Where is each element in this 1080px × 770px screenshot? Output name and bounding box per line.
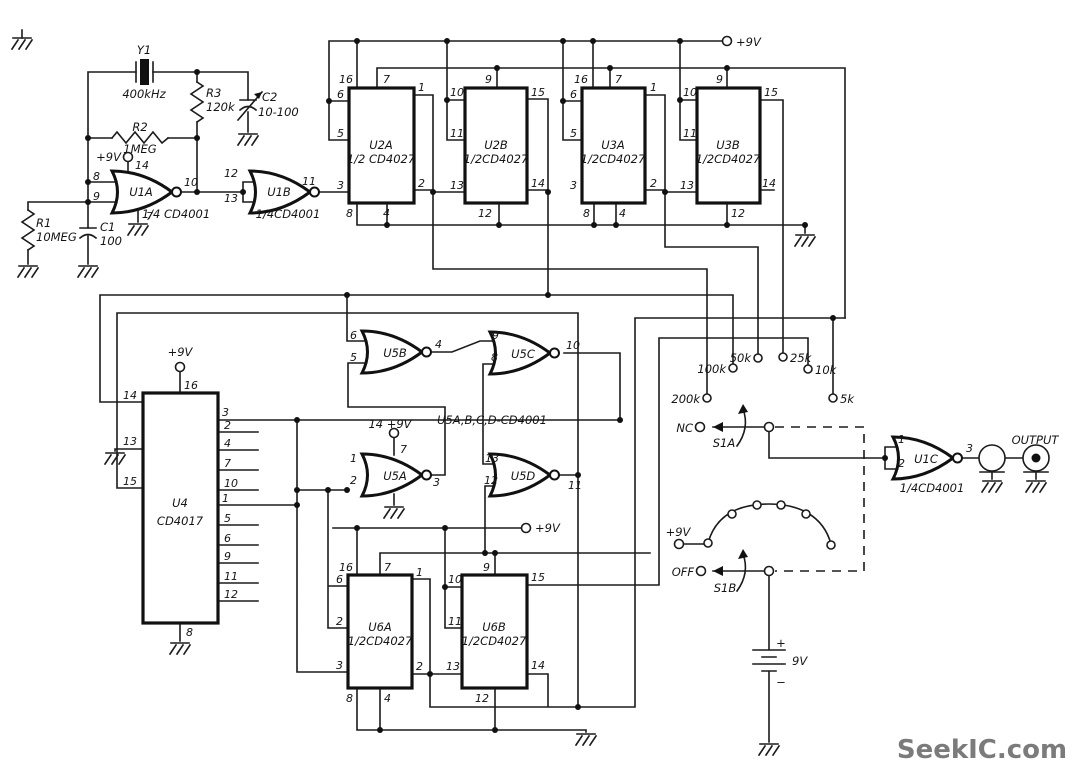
pin-label: 4	[384, 692, 391, 705]
pin-label: 5	[350, 351, 357, 364]
pin-label: 16	[184, 379, 198, 392]
pin-label: 9	[485, 73, 492, 86]
pin-label: 14	[123, 389, 137, 402]
pin-label: 12	[224, 167, 238, 180]
u2b-name: U2B	[484, 138, 508, 152]
pin-label: 12	[484, 474, 498, 487]
s1b-supply-label: +9V	[666, 525, 692, 539]
pin-label: 1	[418, 81, 425, 94]
u1b-part: 1/4CD4001	[256, 207, 321, 221]
s1a-name: S1A	[713, 436, 736, 450]
u5c-name: U5C	[511, 347, 535, 361]
u2b-part: 1/2CD4027	[464, 152, 529, 166]
s1b-contact	[704, 539, 712, 547]
ground-symbols	[12, 38, 1046, 755]
pin-label: 10	[683, 86, 697, 99]
tap-label: 50k	[730, 351, 753, 365]
battery-plus-label: +	[776, 636, 786, 650]
s1b-contact	[753, 501, 761, 509]
s1a-contact-10k	[804, 365, 812, 373]
s1a-contact-50k	[754, 354, 762, 362]
pin-label: 1	[898, 433, 905, 446]
pin-label: 12	[478, 207, 492, 220]
pin-label: 12	[731, 207, 745, 220]
u6-rail-label: +9V	[535, 521, 561, 535]
pin-label: 14	[531, 659, 545, 672]
u6b-part: 1/2CD4027	[462, 634, 527, 648]
output-stage: 1 2 U1C 3 1/4CD4001 OUTPUT	[893, 433, 1059, 495]
cap-c2-value: 10-100	[258, 105, 299, 119]
s1b-contact	[728, 510, 736, 518]
pin-label: 10	[184, 176, 198, 189]
pin-label: 2	[350, 474, 357, 487]
pin-label: 7	[400, 443, 407, 456]
u5a-name: U5A	[383, 469, 407, 483]
resistor-r1-label: R1	[36, 216, 51, 230]
u3b-name: U3B	[716, 138, 740, 152]
u4-vdd-terminal	[176, 363, 185, 372]
u5a-vdd-label: 14 +9V	[368, 417, 412, 431]
pin-label: 2	[336, 615, 343, 628]
pin-label: 9	[93, 190, 100, 203]
s1a-contact-100k	[729, 364, 737, 372]
wires	[22, 30, 1048, 742]
tap-label: 200k	[671, 392, 701, 406]
rail-voltage-label: +9V	[736, 35, 762, 49]
selector-s1a: 200k 100k 50k 25k 10k 5k NC S1A	[671, 351, 855, 450]
pin-label: 8	[346, 207, 353, 220]
s1a-contact-nc	[696, 423, 705, 432]
pin-label: 2	[416, 660, 423, 673]
pin-label: 11	[448, 615, 462, 628]
u1c-name: U1C	[914, 452, 938, 466]
pin-label: 4	[435, 338, 442, 351]
s1b-pole	[765, 567, 774, 576]
pin-label: 16	[574, 73, 588, 86]
pin-label: 9	[492, 329, 499, 342]
u1a-vdd-terminal	[124, 153, 133, 162]
pin-label: 13	[446, 660, 460, 673]
u1c-part: 1/4CD4001	[900, 481, 965, 495]
pin-label: 3	[222, 406, 229, 419]
pin-label: 16	[339, 73, 353, 86]
battery-voltage-label: 9V	[792, 654, 808, 668]
resistor-r3-value: 120k	[206, 100, 236, 114]
pin-label: 7	[384, 561, 391, 574]
u4-vdd-label: +9V	[168, 345, 194, 359]
pin-label: 14	[531, 177, 545, 190]
u3a-part: 1/2CD4027	[581, 152, 646, 166]
pin-label: 9	[483, 561, 490, 574]
pin-label: 1	[416, 566, 423, 579]
s1b-contact	[827, 541, 835, 549]
tap-label: 5k	[840, 392, 855, 406]
resistor-r3-label: R3	[206, 86, 221, 100]
tap-label: 10k	[815, 363, 838, 377]
tap-label: 100k	[697, 362, 727, 376]
pin-label: 14	[135, 159, 149, 172]
s1a-contact-25k	[779, 353, 787, 361]
u3a-name: U3A	[601, 138, 625, 152]
pin-label: 13	[485, 452, 499, 465]
watermark: SeekIC.com	[897, 735, 1067, 765]
pin-label: 4	[224, 437, 231, 450]
gates-u5: 6 5 U5B 4 9 8 U5C 10 14 +9V 7 1 2 U5A 3 …	[350, 329, 582, 496]
pin-label: 6	[570, 88, 577, 101]
pin-label: 8	[491, 351, 498, 364]
pin-label: 15	[123, 475, 137, 488]
resistor-r2-label: R2	[132, 120, 147, 134]
resistor-r1-value: 10MEG	[36, 230, 77, 244]
pin-label: 14	[762, 177, 776, 190]
pin-label: 3	[433, 476, 440, 489]
s1b-contact	[777, 501, 785, 509]
pin-label: 11	[302, 175, 316, 188]
battery-minus-label: −	[776, 675, 786, 689]
u1a-name: U1A	[129, 185, 153, 199]
pin-label: 2	[418, 177, 425, 190]
pin-label: 7	[615, 73, 622, 86]
u4-part: CD4017	[157, 514, 204, 528]
crystal-y1-label: Y1	[137, 43, 151, 57]
pin-label: 8	[346, 692, 353, 705]
pin-label: 7	[383, 73, 390, 86]
pin-label: 1	[350, 452, 357, 465]
output-jack-tip	[1032, 454, 1041, 463]
pin-label: 4	[619, 207, 626, 220]
s1b-off-label: OFF	[672, 565, 695, 579]
crystal-y1-value: 400kHz	[122, 87, 166, 101]
u5d-name: U5D	[511, 469, 536, 483]
battery: + 9V −	[776, 636, 808, 689]
pin-label: 15	[531, 571, 545, 584]
pin-label: 8	[93, 170, 100, 183]
pin-label: 13	[123, 435, 137, 448]
s1b-contact-off	[697, 567, 706, 576]
u2a-name: U2A	[369, 138, 393, 152]
pin-label: 10	[448, 573, 462, 586]
power-switch-s1b: +9V OFF S1B	[666, 501, 835, 595]
pin-label: 9	[224, 550, 231, 563]
pin-label: 3	[570, 179, 577, 192]
pin-label: 4	[383, 207, 390, 220]
pin-label: 3	[336, 659, 343, 672]
cap-c1-label: C1	[100, 220, 115, 234]
circuit-schematic: Y1 400kHz R3 120k C2 10-100 R2 1MEG R1 1…	[0, 0, 1080, 770]
pin-label: 6	[224, 532, 231, 545]
pin-label: 9	[716, 73, 723, 86]
u4-name: U4	[172, 496, 188, 510]
pin-label: 11	[568, 479, 582, 492]
u6a-name: U6A	[368, 620, 392, 634]
s1b-supply-terminal	[675, 540, 684, 549]
output-label: OUTPUT	[1012, 433, 1060, 447]
u5b-name: U5B	[383, 346, 407, 360]
pin-label: 10	[224, 477, 238, 490]
u1a-part: 1/4 CD4001	[142, 207, 210, 221]
pin-label: 12	[475, 692, 489, 705]
pin-label: 11	[224, 570, 238, 583]
schematic-page: Y1 400kHz R3 120k C2 10-100 R2 1MEG R1 1…	[0, 0, 1080, 770]
plus9v-terminal	[723, 37, 732, 46]
pin-label: 11	[683, 127, 697, 140]
pin-label: 15	[764, 86, 778, 99]
pin-label: 3	[337, 179, 344, 192]
u3b-part: 1/2CD4027	[696, 152, 761, 166]
s1a-nc-label: NC	[676, 421, 693, 435]
u2a-part: 1/2 CD4027	[347, 152, 416, 166]
pin-label: 11	[450, 127, 464, 140]
pin-label: 5	[337, 127, 344, 140]
divider-u6: +9V U6A 1/2CD4027 16 7 6 2 3 1 2 8 4 U6B…	[336, 521, 561, 705]
pin-label: 6	[336, 573, 343, 586]
pin-label: 10	[566, 339, 580, 352]
pin-label: 2	[898, 457, 905, 470]
pin-label: 13	[224, 192, 238, 205]
pin-label: 7	[224, 457, 231, 470]
s1a-contact-200k	[703, 394, 711, 402]
pin-label: 8	[186, 626, 193, 639]
pin-label: 10	[450, 86, 464, 99]
pin-label: 5	[570, 127, 577, 140]
pin-label: 15	[531, 86, 545, 99]
oscillator-section: Y1 400kHz R3 120k C2 10-100 R2 1MEG R1 1…	[36, 43, 320, 248]
monitor-jack	[979, 445, 1005, 471]
u5-part-note: U5A,B,C,D-CD4001	[437, 413, 547, 427]
pin-label: 2	[224, 419, 231, 432]
pin-label: 1	[222, 492, 229, 505]
pin-label: 5	[224, 512, 231, 525]
s1a-pole	[765, 423, 774, 432]
pin-label: 13	[450, 179, 464, 192]
cap-c1-value: 100	[100, 234, 122, 248]
pin-label: 6	[337, 88, 344, 101]
pin-label: 6	[350, 329, 357, 342]
u1b-name: U1B	[267, 185, 291, 199]
pin-label: 3	[966, 442, 973, 455]
u1a-vdd-label: +9V	[96, 150, 122, 164]
s1a-contact-5k	[829, 394, 837, 402]
pin-label: 12	[224, 588, 238, 601]
cap-c2-label: C2	[262, 90, 277, 104]
u6a-part: 1/2CD4027	[348, 634, 413, 648]
pin-label: 1	[650, 81, 657, 94]
s1b-name: S1B	[714, 581, 737, 595]
pin-label: 8	[583, 207, 590, 220]
s1b-contact	[802, 510, 810, 518]
pin-label: 13	[680, 179, 694, 192]
pin-label: 2	[650, 177, 657, 190]
u6-vdd-terminal	[522, 524, 531, 533]
tap-label: 25k	[790, 351, 813, 365]
u6b-name: U6B	[482, 620, 506, 634]
divider-chain: +9V U2A 1/2 CD4027 16 7 6 5 3 1 2 8 4 U2…	[337, 35, 778, 220]
